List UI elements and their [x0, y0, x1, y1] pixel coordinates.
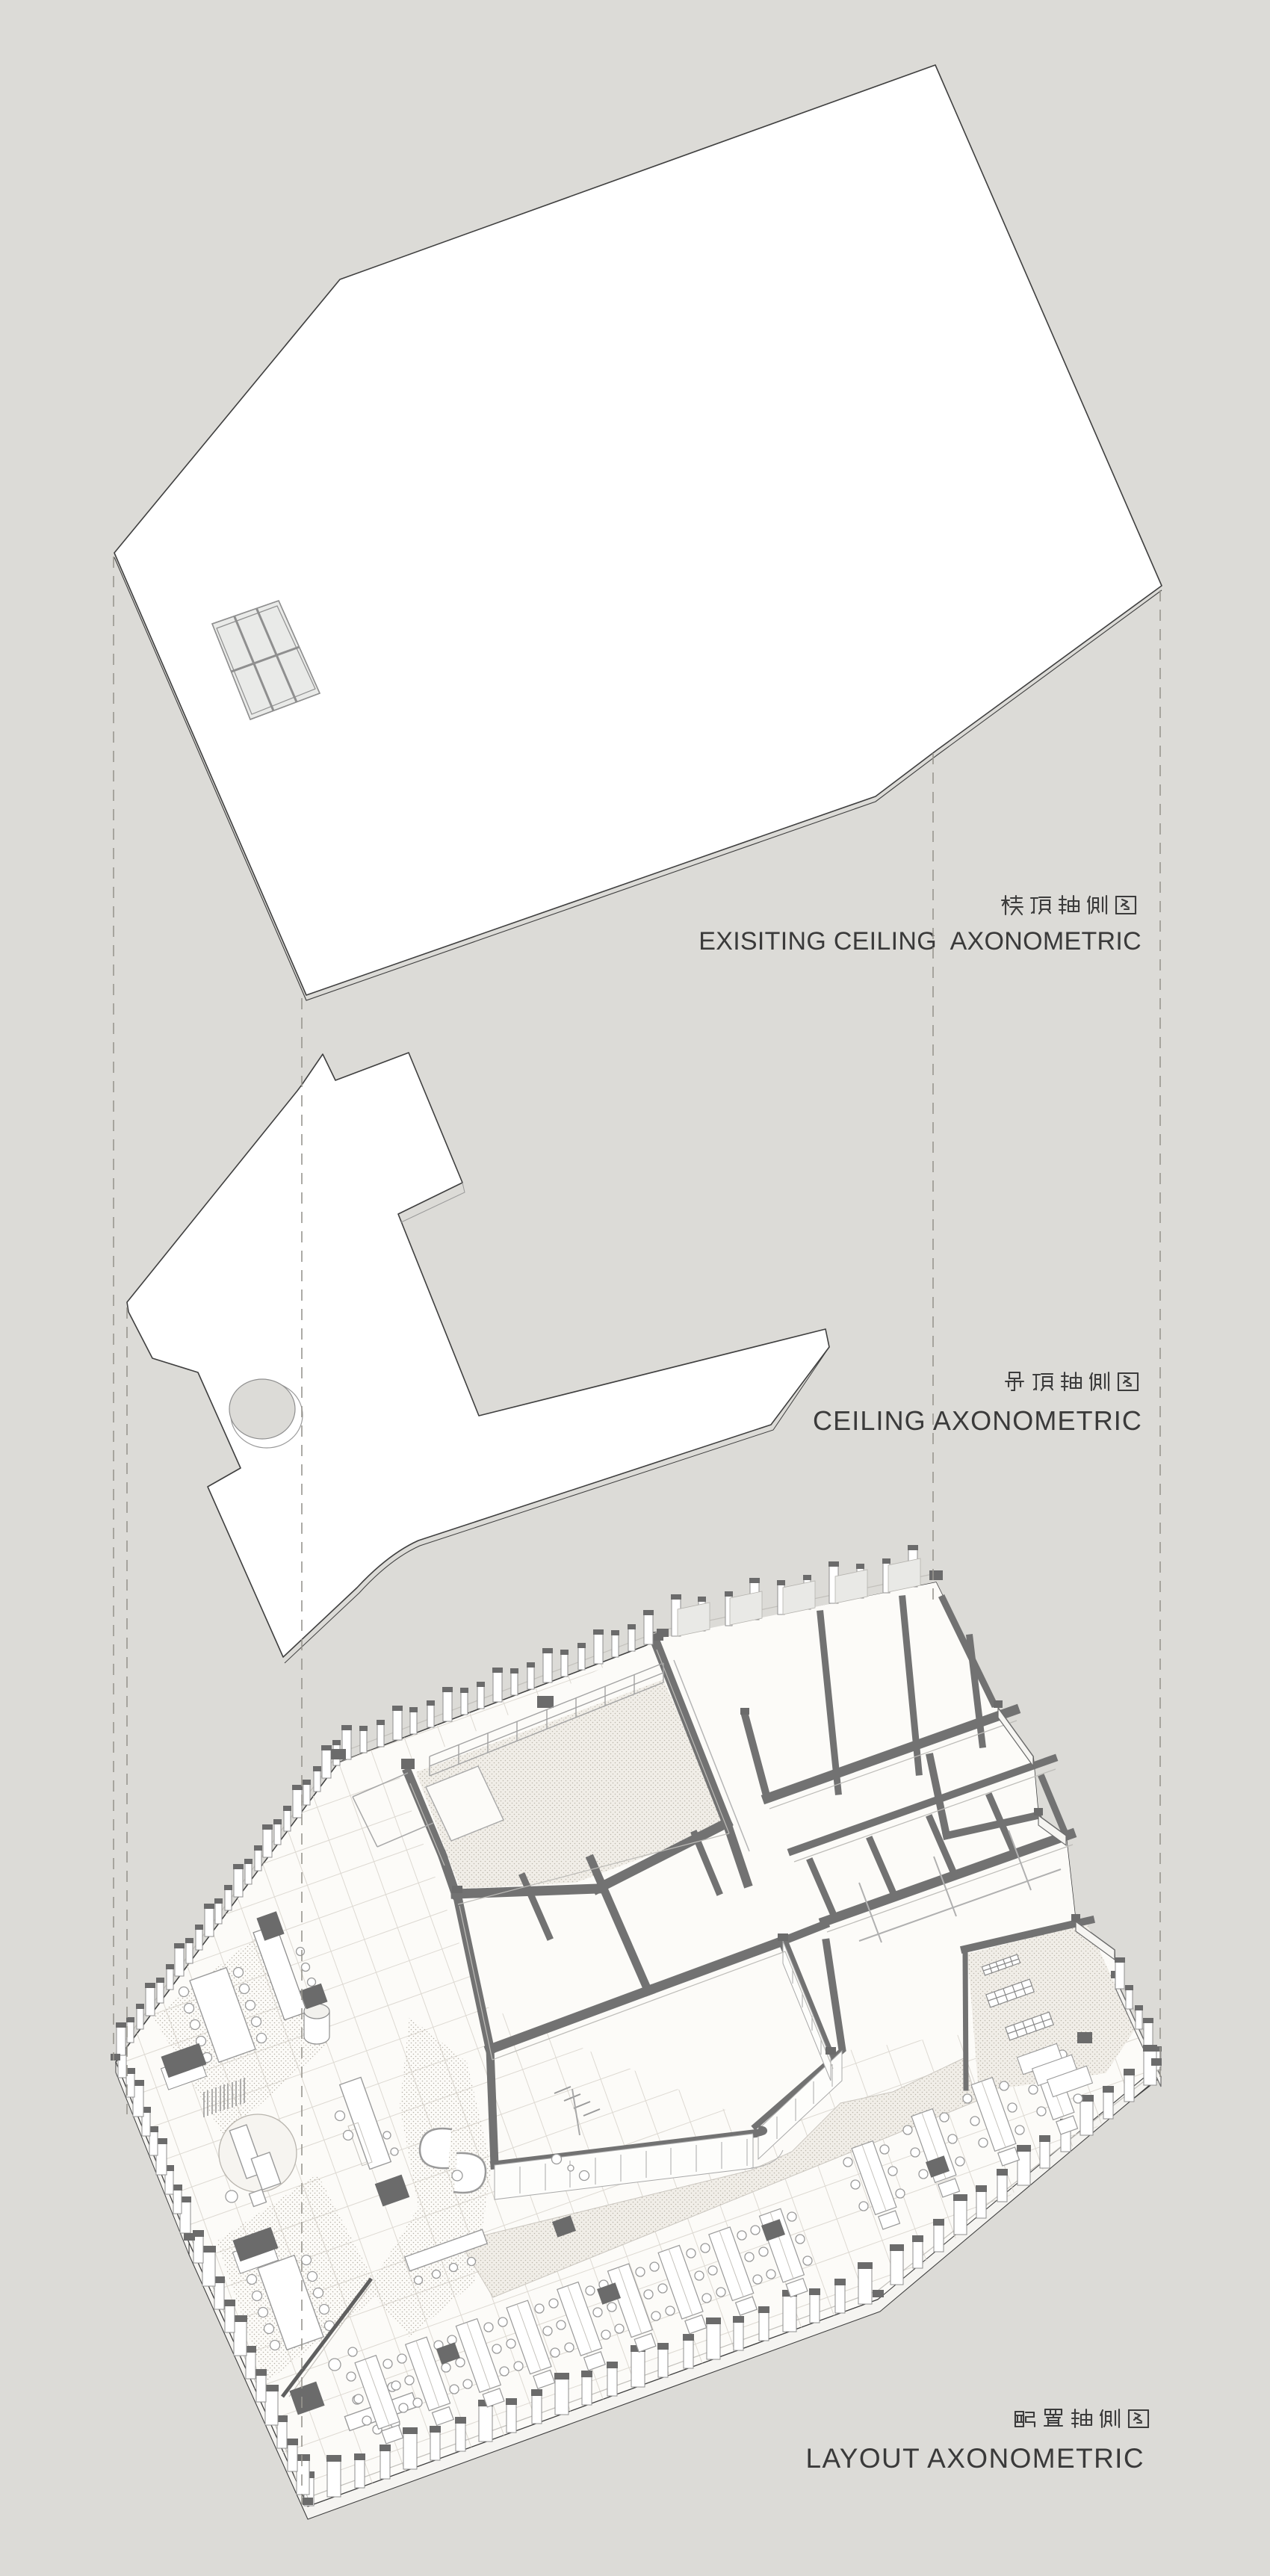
svg-text:CEILING AXONOMETRIC: CEILING AXONOMETRIC — [813, 1405, 1142, 1436]
svg-text:LAYOUT AXONOMETRIC: LAYOUT AXONOMETRIC — [805, 2443, 1144, 2474]
svg-text:EXISITING CEILING AXONOMETRIC: EXISITING CEILING AXONOMETRIC — [698, 927, 1142, 956]
